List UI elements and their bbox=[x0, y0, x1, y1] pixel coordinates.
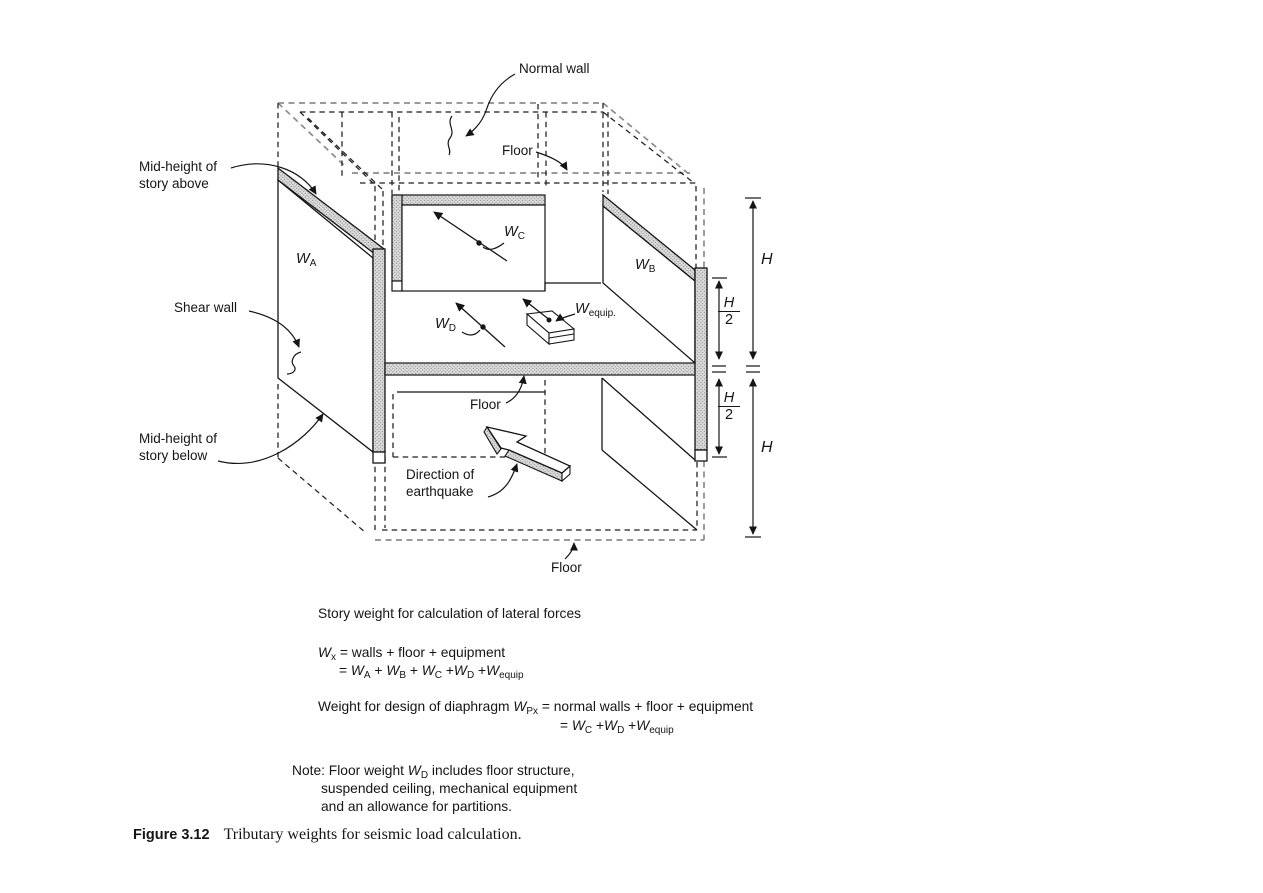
figure-caption-text: Tributary weights for seismic load calcu… bbox=[224, 826, 522, 843]
wall-c-left-band bbox=[392, 195, 402, 281]
slab-left-slant-2 bbox=[308, 118, 383, 190]
h2-upper-numerator: H bbox=[718, 296, 740, 312]
slab-left-slant-1 bbox=[300, 112, 375, 185]
formula-story-line2: = WA + WB + WC +WD +Wequip bbox=[339, 663, 524, 678]
wd-weight-arrow bbox=[456, 303, 505, 347]
label-dim-h2-lower: H 2 bbox=[718, 391, 740, 422]
wall-c-band-cap bbox=[392, 281, 402, 291]
label-dim-h2-upper: H 2 bbox=[718, 296, 740, 327]
label-floor-top: Floor bbox=[502, 142, 533, 159]
wall-b-band-cap bbox=[695, 450, 707, 461]
label-dim-h-upper: H bbox=[761, 251, 773, 269]
leader-direction bbox=[488, 464, 517, 497]
label-mid-height-above-line2: story above bbox=[139, 175, 217, 192]
label-weight-wa: WA bbox=[296, 251, 316, 267]
h2-lower-numerator: H bbox=[718, 391, 740, 407]
leader-floor-bottom bbox=[565, 543, 574, 559]
label-floor-bottom: Floor bbox=[551, 559, 582, 576]
label-weight-wc: WC bbox=[504, 224, 525, 240]
story-below-lines bbox=[397, 378, 697, 530]
wall-a-band-cap bbox=[373, 452, 385, 463]
label-weight-wb: WB bbox=[635, 257, 655, 273]
earthquake-arrow bbox=[484, 427, 570, 481]
wall-b-face bbox=[603, 206, 695, 363]
normal-wall-c bbox=[392, 195, 601, 291]
box-top-right-slant bbox=[603, 103, 690, 175]
wequip-weight-dot bbox=[547, 318, 552, 323]
wd-weight-dot bbox=[480, 324, 485, 329]
figure-caption-number: Figure 3.12 bbox=[133, 827, 210, 843]
shear-wall-b bbox=[603, 195, 707, 461]
figure-caption: Figure 3.12Tributary weights for seismic… bbox=[133, 826, 522, 844]
h2-upper-denominator: 2 bbox=[718, 312, 740, 327]
floor-back-jog bbox=[545, 283, 601, 291]
leader-mid-below bbox=[218, 414, 323, 463]
leader-floor-top bbox=[536, 152, 567, 170]
label-normal-wall: Normal wall bbox=[519, 60, 590, 77]
lower-right-wall-top bbox=[602, 378, 695, 460]
shear-wall-a bbox=[278, 168, 385, 463]
bottom-left-slant bbox=[278, 458, 366, 533]
wall-c-top-band bbox=[392, 195, 545, 205]
label-mid-height-above: Mid-height of story above bbox=[139, 158, 217, 192]
formula-diaphragm-line1: Weight for design of diaphragm WPx = nor… bbox=[318, 699, 753, 714]
label-direction-of-earthquake: Direction of earthquake bbox=[406, 466, 474, 500]
label-floor-mid: Floor bbox=[470, 396, 501, 413]
note-line1: Note: Floor weight WD includes floor str… bbox=[292, 763, 575, 778]
label-direction-line1: Direction of bbox=[406, 466, 474, 483]
h2-lower-denominator: 2 bbox=[718, 407, 740, 422]
label-direction-line2: earthquake bbox=[406, 483, 474, 500]
note-line3: and an allowance for partitions. bbox=[321, 799, 512, 814]
formula-heading: Story weight for calculation of lateral … bbox=[318, 606, 581, 621]
label-weight-wd: WD bbox=[435, 316, 456, 332]
wall-a-face bbox=[278, 180, 373, 452]
leader-normal-wall bbox=[466, 74, 515, 136]
label-shear-wall: Shear wall bbox=[174, 299, 237, 316]
formula-story-line1: Wx = walls + floor + equipment bbox=[318, 645, 505, 660]
dimension-lines bbox=[712, 198, 761, 537]
label-mid-height-below-line2: story below bbox=[139, 447, 217, 464]
squiggle-normal-wall bbox=[448, 116, 452, 155]
label-mid-height-below: Mid-height of story below bbox=[139, 430, 217, 464]
label-mid-height-below-line1: Mid-height of bbox=[139, 430, 217, 447]
floor-slab-band bbox=[385, 363, 697, 375]
lower-right-wall-bottom bbox=[602, 450, 697, 530]
label-dim-h-lower: H bbox=[761, 439, 773, 457]
figure-page: Normal wall Floor Mid-height of story ab… bbox=[0, 0, 1263, 893]
note-line2: suspended ceiling, mechanical equipment bbox=[321, 781, 577, 796]
formula-diaphragm-line2: = WC +WD +Wequip bbox=[560, 718, 674, 733]
wall-a-right-band bbox=[373, 249, 385, 452]
label-weight-wequip: Wequip. bbox=[575, 301, 616, 317]
label-mid-height-above-line1: Mid-height of bbox=[139, 158, 217, 175]
wall-b-right-band bbox=[695, 268, 707, 450]
leader-wd bbox=[462, 330, 480, 335]
wall-c-face bbox=[402, 205, 545, 291]
leader-floor-mid bbox=[506, 376, 524, 403]
wc-weight-dot bbox=[476, 240, 481, 245]
